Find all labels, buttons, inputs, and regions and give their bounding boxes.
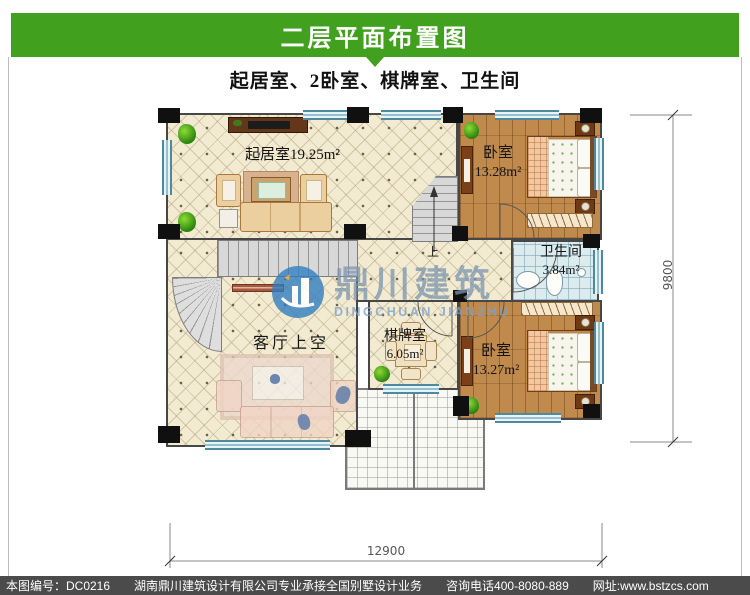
stair-upper-flight: [217, 240, 358, 277]
wall-column: [345, 430, 371, 447]
armchair-left: [216, 174, 241, 207]
bed-mattress: [548, 139, 578, 197]
armchair-cushion: [222, 180, 237, 201]
living-name: 起居室: [245, 147, 290, 163]
bathroom-area: 3.84m²: [524, 262, 598, 279]
bedroom-bottom-name: 卧室: [458, 342, 534, 362]
void-armchair-left: [216, 380, 242, 412]
bedroom-top-wardrobe: [527, 213, 593, 228]
mahjong-chair: [401, 368, 421, 380]
wall-column: [453, 290, 467, 302]
wall-column: [158, 224, 180, 239]
tv-icon: [248, 121, 290, 129]
floor-plan-page: 二层平面布置图 起居室、2卧室、棋牌室、卫生间: [0, 0, 750, 595]
footer-bar: 本图编号：DC0216 湖南鼎川建筑设计有限公司专业承接全国别墅设计业务 咨询电…: [0, 576, 750, 595]
left-page-border: [8, 57, 9, 576]
void-decor: [270, 374, 280, 384]
void-railing: [232, 284, 284, 292]
bedroom-top-area: 13.28m²: [460, 164, 536, 182]
room-summary-subtitle: 起居室、2卧室、棋牌室、卫生间: [0, 66, 750, 93]
dimension-width: 12900: [361, 544, 411, 558]
side-table-left: [219, 209, 238, 228]
nightstand: [575, 315, 595, 330]
plant-bedroom-top: [464, 122, 479, 139]
label-chess: 棋牌室 6.05m²: [366, 328, 444, 363]
living-area: 19.25m²: [290, 147, 340, 163]
nightstand: [575, 121, 595, 136]
wall-column: [158, 108, 180, 123]
wall-column: [583, 404, 600, 418]
bedroom-top-bed: [527, 136, 597, 198]
sofa-three-seat: [240, 202, 332, 232]
title-banner: 二层平面布置图: [11, 13, 739, 57]
right-page-border: [741, 57, 742, 576]
wall-column: [452, 226, 468, 241]
wall-column: [344, 224, 366, 239]
label-living: 起居室19.25m²: [225, 146, 360, 166]
window: [594, 322, 604, 384]
website: 网址:www.bstzcs.com: [593, 577, 709, 594]
sheet-number: 本图编号：DC0216: [6, 577, 110, 594]
window: [381, 110, 441, 120]
bedroom-top-name: 卧室: [460, 144, 536, 164]
window: [495, 413, 561, 423]
plant-living-bottom: [178, 212, 196, 232]
label-bathroom: 卫生间 3.84m²: [524, 244, 598, 279]
bedroom-bottom-wardrobe: [521, 302, 593, 316]
window: [495, 110, 559, 120]
label-stair-up: 上: [421, 245, 445, 261]
chess-area: 6.05m²: [366, 346, 444, 363]
void-sofa: [240, 406, 334, 438]
wall-column: [347, 107, 369, 123]
chess-name: 棋牌室: [366, 328, 444, 346]
label-void: 客厅上空: [236, 334, 346, 355]
terrace-divider: [413, 388, 415, 490]
bedroom-bottom-bed: [527, 330, 597, 392]
plant-chess: [374, 366, 390, 382]
bathroom-name: 卫生间: [524, 244, 598, 262]
nightstand: [575, 199, 595, 214]
wall-column: [443, 107, 463, 123]
contact-phone: 咨询电话400-8080-889: [446, 577, 569, 594]
window: [162, 140, 172, 195]
label-bedroom-bottom: 卧室 13.27m²: [458, 342, 534, 380]
tv-cabinet: [228, 117, 308, 133]
window: [205, 440, 330, 450]
armchair-cushion: [306, 180, 322, 201]
coffee-table: [251, 177, 291, 202]
bed-mattress: [548, 333, 578, 391]
wall-column: [453, 396, 469, 416]
dimension-height: 9800: [661, 253, 675, 297]
bedroom-bottom-area: 13.27m²: [458, 362, 534, 380]
coffee-table-top: [258, 182, 286, 199]
company-name: 湖南鼎川建筑设计有限公司专业承接全国别墅设计业务: [134, 577, 422, 594]
page-title: 二层平面布置图: [281, 18, 470, 53]
tv-plant-decor: [233, 120, 242, 126]
label-bedroom-top: 卧室 13.28m²: [460, 144, 536, 182]
plant-living-top: [178, 124, 196, 144]
window: [383, 384, 439, 394]
wall-column: [580, 108, 602, 123]
wall-column: [158, 426, 180, 443]
window: [594, 138, 604, 190]
